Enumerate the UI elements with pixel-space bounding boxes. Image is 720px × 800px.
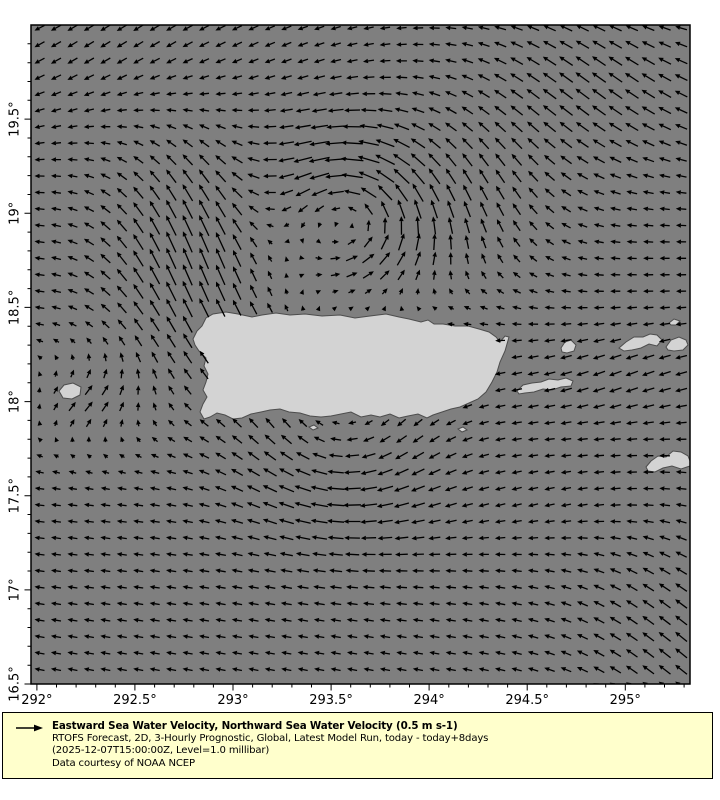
- x-tick-label: 292.5°: [113, 693, 157, 708]
- y-tick-label: 17°: [8, 578, 23, 601]
- reference-arrow-icon: [15, 723, 43, 733]
- legend-time-line: (2025-12-07T15:00:00Z, Level=1.0 milliba…: [52, 745, 488, 757]
- legend-credit-line: Data courtesy of NOAA NCEP: [52, 758, 488, 770]
- legend-box: Eastward Sea Water Velocity, Northward S…: [2, 712, 713, 779]
- x-tick-label: 292°: [21, 693, 52, 708]
- y-tick-label: 19.5°: [8, 101, 23, 136]
- y-tick-label: 17.5°: [8, 478, 23, 513]
- velocity-forecast-figure: 292°292.5°293°293.5°294°294.5°295°16.5°1…: [0, 0, 720, 800]
- x-tick-label: 293°: [217, 693, 248, 708]
- y-tick-label: 19°: [8, 202, 23, 225]
- legend-model-line: RTOFS Forecast, 2D, 3-Hourly Prognostic,…: [52, 733, 488, 745]
- y-tick-label: 16.5°: [8, 666, 23, 701]
- island-puerto-rico: [193, 312, 509, 419]
- quiver-map: 292°292.5°293°293.5°294°294.5°295°16.5°1…: [0, 0, 720, 712]
- x-tick-label: 295°: [610, 693, 641, 708]
- y-tick-label: 18°: [8, 390, 23, 413]
- x-tick-label: 293.5°: [309, 693, 353, 708]
- y-tick-label: 18.5°: [8, 290, 23, 325]
- legend-text-block: Eastward Sea Water Velocity, Northward S…: [52, 720, 488, 770]
- x-tick-label: 294.5°: [505, 693, 549, 708]
- x-tick-label: 294°: [413, 693, 444, 708]
- legend-title: Eastward Sea Water Velocity, Northward S…: [52, 720, 488, 733]
